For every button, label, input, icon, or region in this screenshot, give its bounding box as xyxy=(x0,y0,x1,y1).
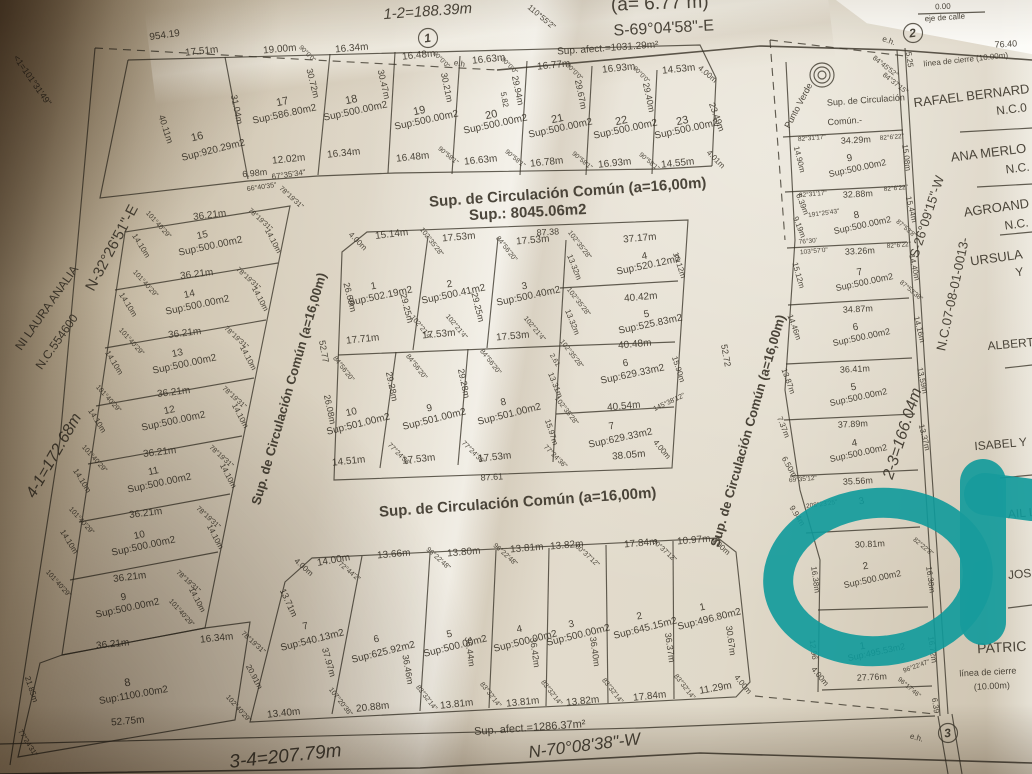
highlight-annotation-layer xyxy=(0,0,1032,774)
survey-map-photo: 123 954.191-2=188.39m110°55'2"e.h5.82(a=… xyxy=(0,0,1032,774)
teal-ring-annotation xyxy=(772,482,1032,659)
